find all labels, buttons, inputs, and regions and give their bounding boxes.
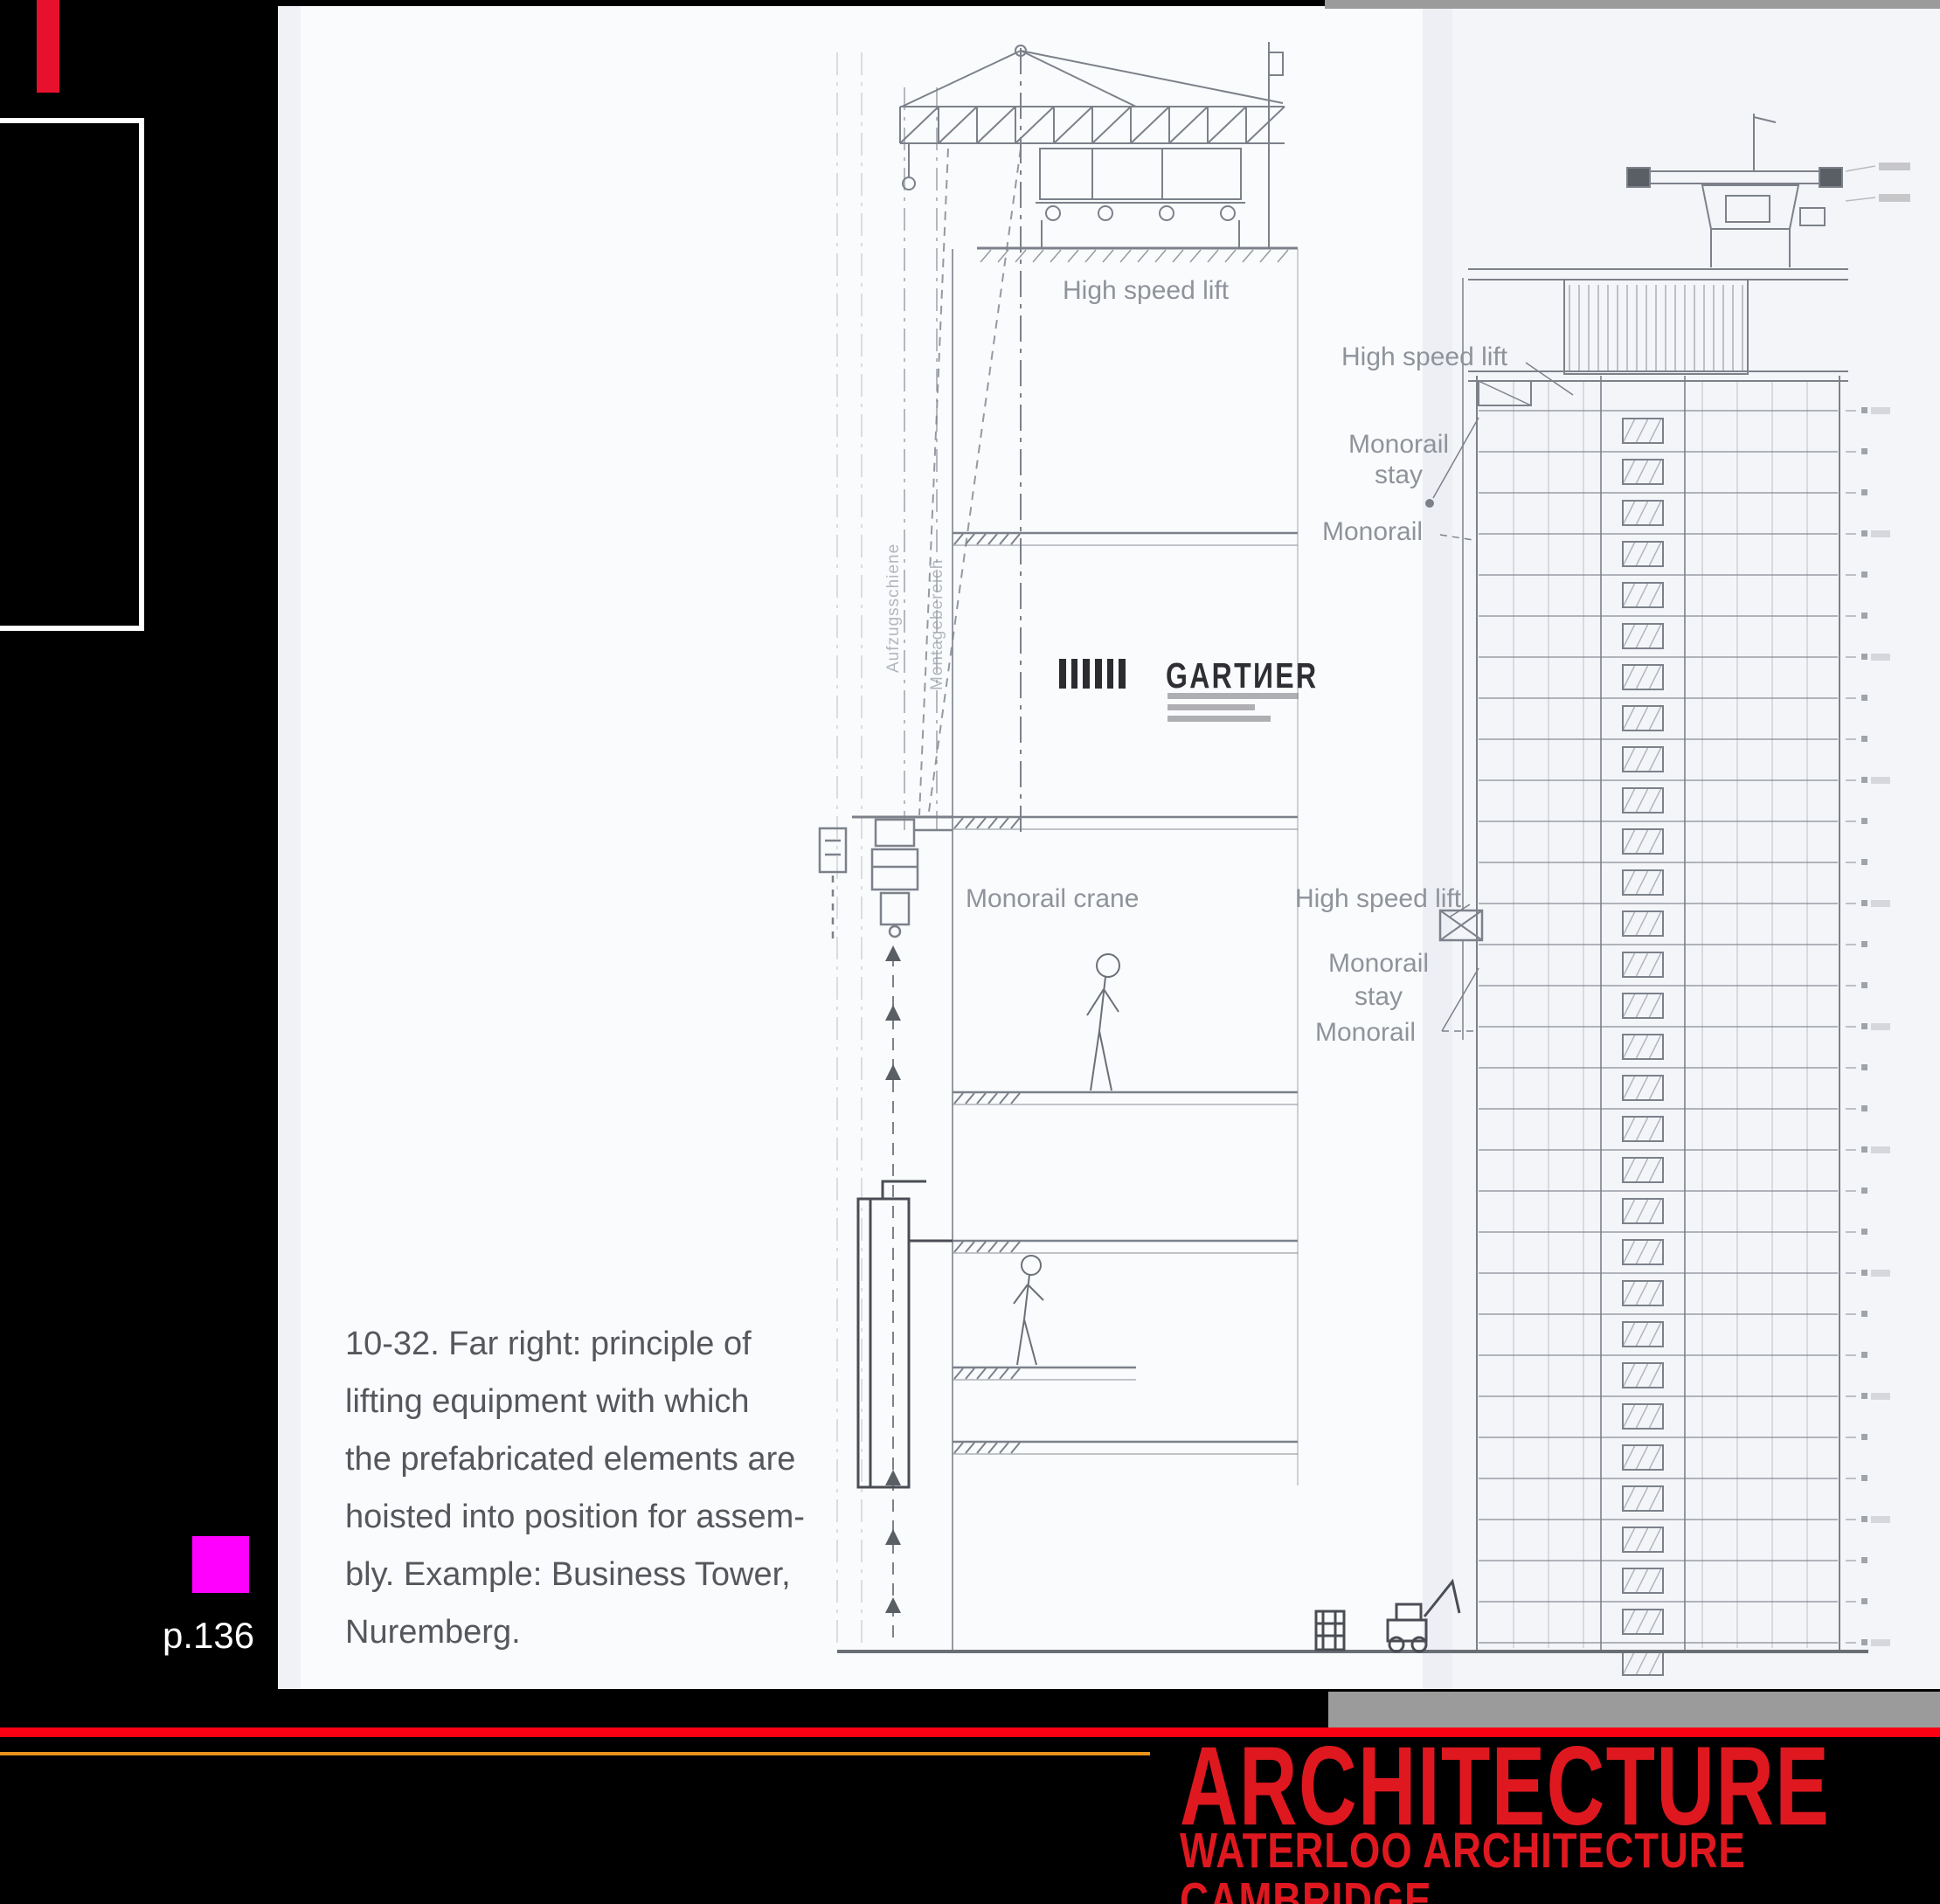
monorail-crane-device (820, 820, 953, 944)
gartner-address-line (1167, 693, 1299, 699)
excavator-sketch (1388, 1582, 1459, 1651)
vertical-label-lift-rail: Aufzugsschiene (884, 544, 904, 673)
label-monorail-stay-mid-2: stay (1355, 982, 1403, 1011)
gartner-address-line (1167, 716, 1271, 722)
caption-line: hoisted into position for assem- (345, 1488, 817, 1546)
caption-line: Nuremberg. (345, 1603, 817, 1661)
slide: on ad (0, 0, 1940, 1904)
label-monorail-stay-top-1: Monorail (1348, 430, 1449, 459)
label-high-speed-lift-section: High speed lift (1063, 276, 1229, 305)
hoist-machine-sketch (1316, 1611, 1344, 1650)
magenta-marker (192, 1536, 249, 1593)
person-figure-lower (1014, 1256, 1043, 1365)
vertical-label-assembly-zone: Montagebereich (928, 559, 947, 690)
footer-orange-line (0, 1752, 1150, 1755)
brand-waterloo-architecture-cambridge: WATERLOO ARCHITECTURE CAMBRIDGE (1180, 1826, 1788, 1904)
label-high-speed-lift-top: High speed lift (1341, 343, 1507, 371)
label-monorail-crane: Monorail crane (966, 884, 1139, 913)
gartner-address-line (1167, 704, 1255, 710)
caption-line: bly. Example: Business Tower, (345, 1546, 817, 1603)
person-figure-upper (1087, 954, 1119, 1090)
hoisting-arrows (885, 945, 901, 1641)
gartner-logo-text: GARTИER (1166, 655, 1318, 696)
technical-drawing (0, 0, 1940, 1904)
caption-line: lifting equipment with which (345, 1373, 817, 1430)
label-monorail-stay-top-2: stay (1375, 460, 1423, 489)
page-reference: p.136 (163, 1615, 254, 1657)
top-gray-bar (1325, 0, 1940, 9)
label-monorail-top: Monorail (1322, 517, 1423, 546)
label-high-speed-lift-mid: High speed lift (1295, 884, 1461, 913)
bottom-gray-bar (1328, 1692, 1940, 1728)
caption-line: the prefabricated elements are (345, 1430, 817, 1488)
gartner-logo-bars (1059, 659, 1126, 689)
label-monorail-mid: Monorail (1315, 1018, 1416, 1047)
label-monorail-stay-mid-1: Monorail (1328, 949, 1429, 978)
caption-line: 10-32. Far right: principle of (345, 1315, 817, 1373)
facade-panel (858, 1181, 953, 1487)
figure-caption: 10-32. Far right: principle of lifting e… (345, 1315, 817, 1661)
